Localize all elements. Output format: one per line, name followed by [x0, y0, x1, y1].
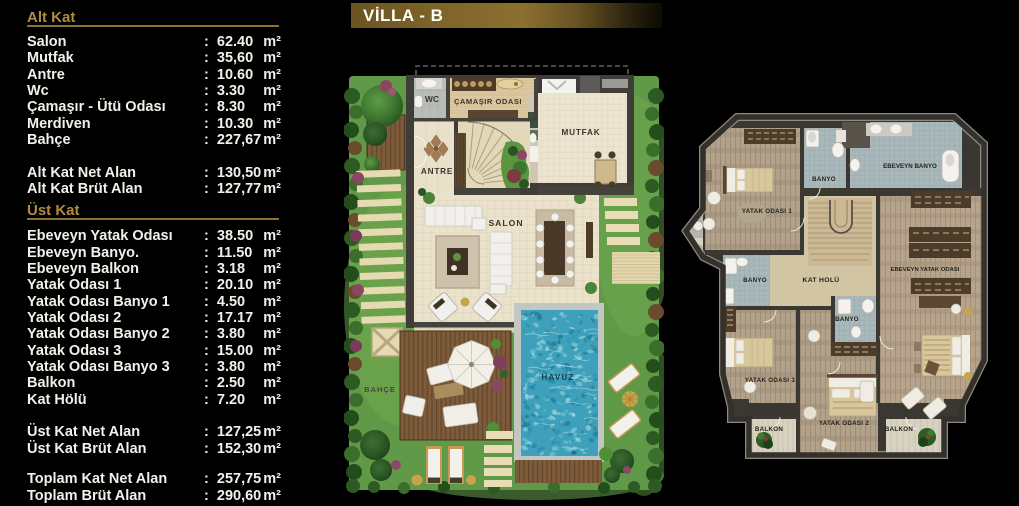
svg-text:BANYO: BANYO — [835, 316, 859, 323]
svg-text:MUTFAK: MUTFAK — [562, 128, 601, 137]
svg-text:EBEVEYN YATAK ODASI: EBEVEYN YATAK ODASI — [891, 267, 960, 273]
svg-text:BANYO: BANYO — [743, 277, 767, 284]
svg-text:BALKON: BALKON — [885, 426, 913, 433]
svg-text:SALON: SALON — [488, 218, 523, 228]
svg-text:YATAK ODASI 3: YATAK ODASI 3 — [745, 377, 795, 384]
svg-text:ÇAMAŞIR ODASI: ÇAMAŞIR ODASI — [454, 97, 522, 106]
svg-text:BALKON: BALKON — [755, 426, 783, 433]
svg-text:ANTRE: ANTRE — [421, 167, 453, 176]
svg-text:BANYO: BANYO — [812, 176, 836, 183]
svg-text:HAVUZ: HAVUZ — [542, 373, 575, 382]
svg-text:EBEVEYN BANYO: EBEVEYN BANYO — [883, 163, 937, 170]
svg-text:YATAK ODASI 2: YATAK ODASI 2 — [819, 420, 869, 427]
svg-text:BAHÇE: BAHÇE — [364, 385, 396, 394]
svg-text:WC: WC — [425, 94, 439, 104]
svg-text:YATAK ODASI 1: YATAK ODASI 1 — [742, 208, 792, 215]
svg-text:KAT HOLÜ: KAT HOLÜ — [802, 275, 839, 284]
